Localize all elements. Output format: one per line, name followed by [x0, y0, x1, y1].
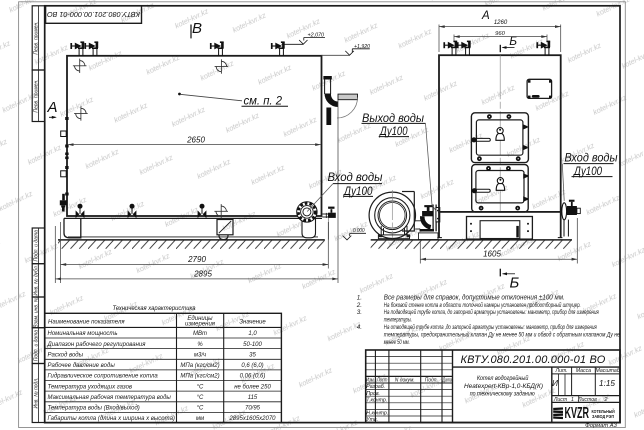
svg-text:Формат А3: Формат А3: [585, 423, 617, 429]
svg-text:Б: Б: [509, 34, 517, 48]
svg-text:Температура уходящих газов: Температура уходящих газов: [48, 384, 133, 390]
svg-text:2.: 2.: [356, 302, 362, 309]
svg-text:Инв. № подл.: Инв. № подл.: [33, 377, 39, 408]
svg-text:Масштаб: Масштаб: [595, 368, 620, 374]
svg-text:На отводящей трубе котла ,до з: На отводящей трубе котла ,до запорной ар…: [384, 323, 597, 331]
svg-text:Листов: Листов: [577, 397, 597, 403]
svg-text:3.: 3.: [357, 309, 362, 316]
svg-text:Ду100: Ду100: [378, 124, 407, 138]
svg-text:Наименование показателя: Наименование показателя: [48, 320, 125, 326]
svg-text:Перв. примен.: Перв. примен.: [33, 79, 39, 112]
svg-text:Расход воды: Расход воды: [48, 352, 84, 358]
svg-text:Номинальная мощность: Номинальная мощность: [48, 331, 118, 337]
svg-text:1:15: 1:15: [599, 379, 615, 388]
svg-text:КВТУ.080.201.00.000-01 ВО: КВТУ.080.201.00.000-01 ВО: [47, 10, 140, 19]
svg-text:Значение: Значение: [239, 320, 266, 326]
svg-text:Выход воды: Выход воды: [362, 111, 424, 125]
svg-text:2650: 2650: [186, 136, 205, 145]
svg-text:Диапазон рабочего регулировани: Диапазон рабочего регулирования: [47, 342, 147, 348]
svg-text:На подводящей трубе котла, до: На подводящей трубе котла, до запорной а…: [384, 308, 599, 316]
svg-text:Утв.: Утв.: [366, 417, 378, 423]
svg-text:температуры, предохранительный: температуры, предохранительный клапан Ду…: [384, 331, 620, 339]
svg-text:+1,920: +1,920: [354, 44, 371, 50]
svg-text:Котел водогрейный: Котел водогрейный: [477, 374, 529, 382]
svg-text:Подп.: Подп.: [425, 377, 438, 383]
svg-text:Разраб.: Разраб.: [366, 384, 385, 390]
svg-text:2895х1605х2070: 2895х1605х2070: [228, 416, 276, 422]
svg-text:Гидравлическое сопротивление к: Гидравлическое сопротивление котла: [48, 374, 159, 380]
svg-text:Вход воды: Вход воды: [565, 151, 618, 165]
svg-text:Лист: Лист: [553, 397, 568, 403]
svg-text:35: 35: [249, 352, 256, 358]
svg-text:И: И: [552, 379, 558, 388]
svg-text:Рабочее давление воды: Рабочее давление воды: [48, 363, 116, 369]
svg-text:Все размеры для справок, допус: Все размеры для справок, допустимые откл…: [384, 294, 565, 302]
svg-text:по техническому заданию: по техническому заданию: [470, 390, 535, 398]
svg-text:2895: 2895: [193, 270, 212, 279]
svg-text:1260: 1260: [494, 20, 508, 26]
svg-text:0,6 (6,0): 0,6 (6,0): [241, 363, 263, 369]
svg-text:мм: мм: [196, 416, 204, 422]
svg-text:115: 115: [248, 395, 258, 401]
svg-text:КОТЕЛЬНЫЙ: КОТЕЛЬНЫЙ: [592, 407, 615, 414]
svg-text:0.000: 0.000: [353, 228, 365, 234]
svg-text:50-100: 50-100: [243, 342, 262, 348]
svg-text:1.: 1.: [357, 295, 362, 302]
svg-text:1605: 1605: [483, 250, 501, 259]
svg-text:Инв. № дубл.: Инв. № дубл.: [33, 265, 39, 296]
svg-text:Вход воды: Вход воды: [328, 170, 383, 184]
svg-text:МПа (кгс/см2): МПа (кгс/см2): [180, 363, 219, 369]
svg-text:0,06 (0,6): 0,06 (0,6): [240, 374, 266, 380]
svg-text:не более 250: не более 250: [234, 384, 271, 390]
svg-text:Н.контр.: Н.контр.: [366, 411, 388, 417]
svg-text:°С: °С: [197, 384, 204, 390]
svg-text:Лит.: Лит.: [555, 368, 568, 374]
svg-text:МПа (кгс/см2): МПа (кгс/см2): [180, 374, 219, 380]
svg-text:м3/ч: м3/ч: [194, 352, 206, 358]
svg-text:Б: Б: [510, 275, 520, 292]
svg-text:1,0: 1,0: [248, 331, 257, 337]
svg-text:KVZR: KVZR: [565, 405, 590, 422]
svg-text:1: 1: [571, 397, 574, 403]
svg-text:температуры.: температуры.: [384, 317, 412, 324]
svg-text:Лист: Лист: [376, 377, 388, 383]
svg-text:Масса: Масса: [576, 368, 591, 374]
svg-text:Ду100: Ду100: [342, 184, 372, 198]
svg-text:Габариты котла (длина х ширина: Габариты котла (длина х ширина х высота): [48, 416, 175, 422]
svg-text:+2,070: +2,070: [308, 32, 325, 38]
svg-text:Взам. инв. №: Взам. инв. №: [33, 296, 39, 328]
svg-text:Перв. примен.: Перв. примен.: [33, 21, 39, 54]
svg-text:Подп. и дата: Подп. и дата: [33, 330, 39, 362]
svg-text:На боковой стенке котла в обла: На боковой стенке котла в области топочн…: [384, 301, 581, 309]
svg-text:2: 2: [604, 397, 608, 403]
svg-text:ЗАВОД РЭП: ЗАВОД РЭП: [592, 414, 614, 419]
svg-text:менее 50 мм.: менее 50 мм.: [384, 339, 410, 346]
svg-text:960: 960: [495, 31, 505, 37]
svg-text:Дата: Дата: [442, 377, 452, 383]
svg-text:Пров.: Пров.: [366, 391, 380, 397]
svg-text:Т.контр.: Т.контр.: [366, 397, 387, 403]
svg-text:Подп. и дата: Подп. и дата: [33, 230, 39, 262]
svg-text:измерения: измерения: [185, 322, 216, 328]
svg-text:%: %: [197, 342, 203, 348]
svg-text:Изм.: Изм.: [366, 377, 375, 383]
svg-text:70/95: 70/95: [245, 406, 261, 412]
svg-text:°С: °С: [197, 395, 204, 401]
svg-text:Максимальная рабочая температу: Максимальная рабочая температура воды: [48, 395, 172, 401]
svg-text:МВт: МВт: [193, 331, 207, 337]
svg-text:Ду100: Ду100: [572, 164, 602, 178]
svg-text:А: А: [481, 10, 490, 22]
svg-text:А: А: [47, 99, 58, 116]
svg-text:Температура воды (Вход/выход): Температура воды (Вход/выход): [48, 406, 140, 412]
svg-text:2790: 2790: [187, 255, 206, 264]
svg-text:В: В: [192, 20, 202, 37]
svg-text:4.: 4.: [357, 324, 362, 331]
svg-text:КВТУ.080.201.00.000-01 ВО: КВТУ.080.201.00.000-01 ВО: [460, 354, 605, 366]
svg-text:N докум.: N докум.: [395, 377, 415, 383]
svg-text:Техническая характеристика: Техническая характеристика: [113, 305, 196, 312]
svg-text:°С: °С: [197, 406, 204, 412]
svg-text:Heatexpert-КВр-1,0-КБД(К): Heatexpert-КВр-1,0-КБД(К): [464, 383, 543, 390]
